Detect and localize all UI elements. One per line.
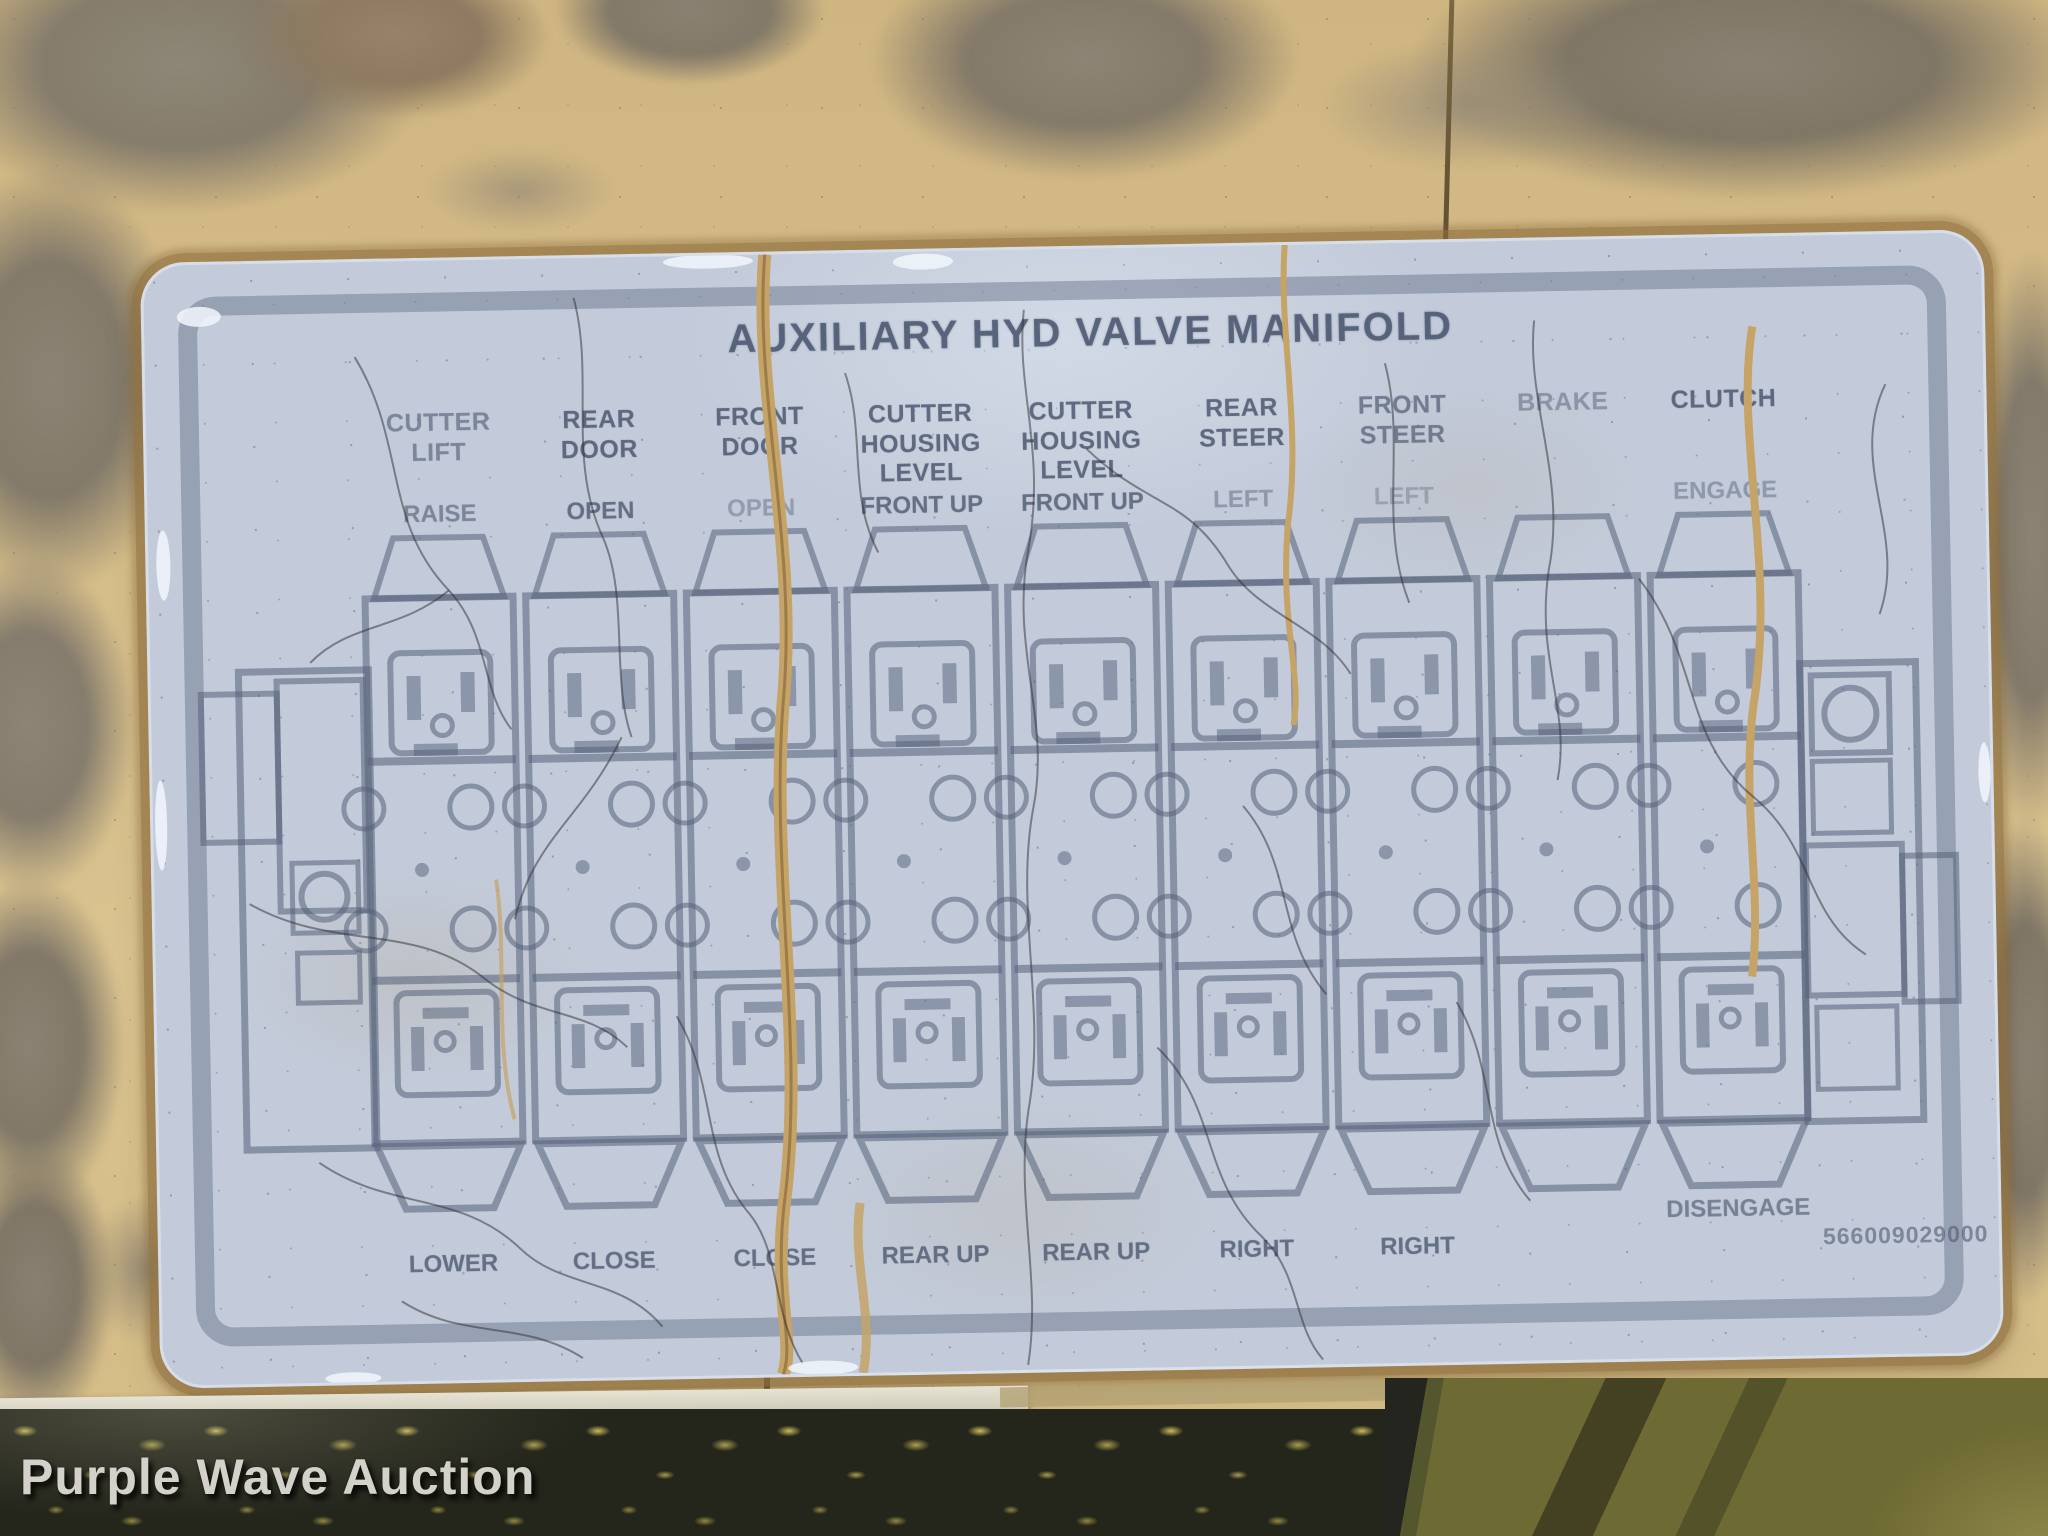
column-action-up: LEFT bbox=[1315, 481, 1492, 512]
column-action-up: FRONT UP bbox=[994, 487, 1171, 518]
column-header: CUTTERHOUSINGLEVEL bbox=[1000, 395, 1162, 486]
column-action-down: RIGHT bbox=[1168, 1234, 1345, 1265]
valve-column: CUTTERHOUSINGLEVELFRONT UPREAR UP bbox=[1000, 395, 1177, 1278]
column-action-down: CLOSE bbox=[686, 1243, 863, 1274]
column-action-up: LEFT bbox=[1155, 484, 1332, 515]
column-action-up: FRONT UP bbox=[833, 490, 1010, 521]
column-header: CUTTERHOUSINGLEVEL bbox=[840, 398, 1002, 489]
valve-column: FRONTDOOROPENCLOSE bbox=[679, 401, 856, 1284]
column-action-up: RAISE bbox=[351, 499, 528, 530]
column-header: BRAKE bbox=[1482, 386, 1643, 418]
column-header: FRONTSTEER bbox=[1322, 389, 1484, 451]
valve-column: CLUTCHENGAGEDISENGAGE bbox=[1643, 384, 1820, 1267]
column-action-up: ENGAGE bbox=[1637, 475, 1814, 506]
column-action-up: OPEN bbox=[673, 493, 850, 524]
decal-title: AUXILIARY HYD VALVE MANIFOLD bbox=[144, 294, 1983, 373]
column-action-up: OPEN bbox=[512, 496, 689, 527]
column-header: CLUTCH bbox=[1643, 384, 1804, 416]
valve-column: REARSTEERLEFTRIGHT bbox=[1161, 392, 1338, 1275]
valve-column: CUTTERLIFTRAISELOWER bbox=[358, 407, 535, 1290]
column-header: FRONTDOOR bbox=[679, 401, 841, 463]
column-action-down: REAR UP bbox=[847, 1240, 1024, 1271]
rust-patch bbox=[870, 0, 1300, 180]
valve-column: REARDOOROPENCLOSE bbox=[518, 404, 695, 1287]
rust-patch bbox=[0, 555, 135, 895]
rust-patch bbox=[555, 0, 825, 85]
rust-patch bbox=[1320, 40, 1620, 170]
panel-edge-strip-right bbox=[1000, 1381, 1395, 1408]
watermark-text: Purple Wave Auction bbox=[20, 1448, 535, 1506]
valve-column: BRAKE bbox=[1482, 386, 1659, 1269]
column-action-down bbox=[1490, 1228, 1667, 1231]
column-action-down: CLOSE bbox=[526, 1246, 703, 1277]
lower-equipment-panel bbox=[1385, 1378, 2048, 1536]
valve-column: CUTTERHOUSINGLEVELFRONT UPREAR UP bbox=[840, 398, 1017, 1281]
column-header: REARDOOR bbox=[518, 404, 680, 466]
rust-patch bbox=[425, 148, 615, 233]
column-action-down: LOWER bbox=[365, 1249, 542, 1280]
photo-valve-manifold-decal: AUXILIARY HYD VALVE MANIFOLD CUTTERLIFTR… bbox=[0, 0, 2048, 1536]
column-header: REARSTEER bbox=[1161, 392, 1323, 454]
valve-column: FRONTSTEERLEFTRIGHT bbox=[1322, 389, 1499, 1272]
column-header: CUTTERLIFT bbox=[358, 407, 520, 469]
column-action-down: DISENGAGE bbox=[1650, 1193, 1827, 1224]
valve-columns-row: CUTTERLIFTRAISELOWERREARDOOROPENCLOSEFRO… bbox=[358, 383, 1822, 1309]
column-action-down: RIGHT bbox=[1329, 1231, 1506, 1262]
part-number: 566009029000 bbox=[1823, 1220, 1983, 1250]
column-action-up bbox=[1476, 478, 1653, 481]
manifold-decal: AUXILIARY HYD VALVE MANIFOLD CUTTERLIFTR… bbox=[140, 229, 2004, 1389]
column-action-down: REAR UP bbox=[1008, 1237, 1185, 1268]
